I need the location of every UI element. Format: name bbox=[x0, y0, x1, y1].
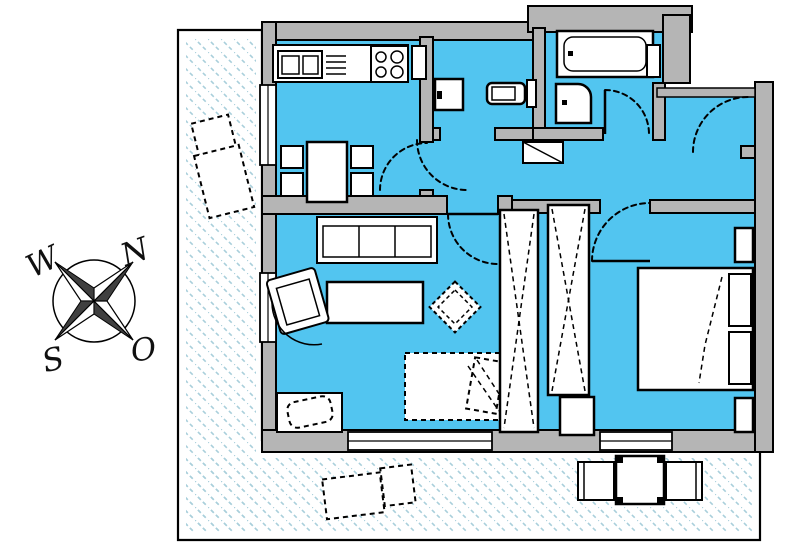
shower-tray bbox=[556, 84, 591, 123]
wall-north-left bbox=[262, 22, 533, 40]
tv-board bbox=[277, 393, 342, 432]
wall-east bbox=[755, 82, 773, 452]
wall-south bbox=[262, 430, 773, 452]
patio-chair bbox=[666, 462, 702, 500]
door-gap-kitchen bbox=[420, 142, 433, 190]
wall-bath-east-upper bbox=[663, 15, 690, 83]
compass-label-north: N bbox=[115, 230, 156, 274]
compass-arm-half bbox=[55, 301, 94, 340]
wall-bedroom-north-right bbox=[650, 200, 755, 213]
door-gap-bedroom bbox=[600, 200, 650, 213]
patio-table-corner bbox=[617, 497, 623, 503]
wall-door-stub-utility bbox=[741, 146, 755, 158]
bathtub bbox=[557, 31, 653, 77]
washbasin bbox=[435, 79, 463, 110]
compass-label-east: O bbox=[128, 330, 158, 369]
stove-body bbox=[371, 46, 408, 82]
wall-utility-north bbox=[657, 88, 755, 97]
pillow bbox=[729, 332, 751, 384]
patio-table-corner bbox=[657, 497, 663, 503]
bathtub-drain bbox=[568, 51, 573, 56]
pillow bbox=[729, 274, 751, 326]
sofa-body bbox=[317, 217, 437, 263]
patio-table-corner bbox=[617, 457, 623, 463]
wall-wc-south-a bbox=[433, 128, 440, 140]
patio-table-top bbox=[616, 456, 664, 504]
double-bed bbox=[638, 268, 753, 390]
kitchen-west-window bbox=[260, 85, 276, 165]
dining-chair bbox=[281, 146, 303, 168]
patio-table-corner bbox=[657, 457, 663, 463]
patio-table bbox=[616, 456, 664, 504]
nightstand bbox=[735, 228, 753, 262]
tall-cabinet bbox=[412, 46, 426, 79]
shower bbox=[556, 84, 591, 123]
stove bbox=[371, 46, 408, 82]
door-gap-bathroom bbox=[603, 128, 653, 140]
wall-wc-south-b bbox=[495, 128, 533, 140]
dining-table bbox=[307, 142, 347, 202]
patio-set bbox=[578, 456, 702, 504]
sofa bbox=[317, 217, 437, 263]
compass-label-south: S bbox=[38, 340, 68, 380]
lounger-backrest bbox=[380, 465, 415, 506]
wardrobe bbox=[500, 210, 538, 432]
door-gap-living bbox=[447, 196, 498, 214]
washbasin-tap bbox=[437, 91, 442, 99]
floor-plan-drawing: N W S O bbox=[0, 0, 800, 560]
toilet bbox=[487, 80, 536, 107]
patio-chair bbox=[578, 462, 614, 500]
coffee-table bbox=[327, 282, 423, 323]
wall-living-north bbox=[262, 196, 447, 214]
dresser bbox=[560, 397, 594, 435]
floor-plan-page: N W S O bbox=[0, 0, 800, 560]
dining-chair bbox=[281, 173, 303, 196]
hall-cabinet bbox=[523, 142, 563, 163]
living-south-window bbox=[348, 432, 492, 450]
dining-chair bbox=[351, 173, 373, 196]
terrace-hatch-left bbox=[186, 38, 256, 532]
wall-bath-south bbox=[533, 128, 603, 140]
bedroom-south-door bbox=[600, 432, 672, 450]
compass-arm-half bbox=[94, 301, 133, 340]
dining-set bbox=[281, 142, 373, 202]
guest-bed bbox=[405, 353, 508, 420]
wardrobe bbox=[548, 205, 589, 395]
bathroom-shelf bbox=[647, 45, 660, 77]
toilet-cistern bbox=[527, 80, 536, 107]
lounger-seat bbox=[322, 472, 384, 519]
dining-chair bbox=[351, 146, 373, 168]
shower-drain bbox=[562, 100, 567, 105]
nightstand bbox=[735, 398, 753, 432]
door-gap-wc bbox=[440, 128, 495, 140]
compass-rose-icon: N W S O bbox=[21, 230, 159, 380]
